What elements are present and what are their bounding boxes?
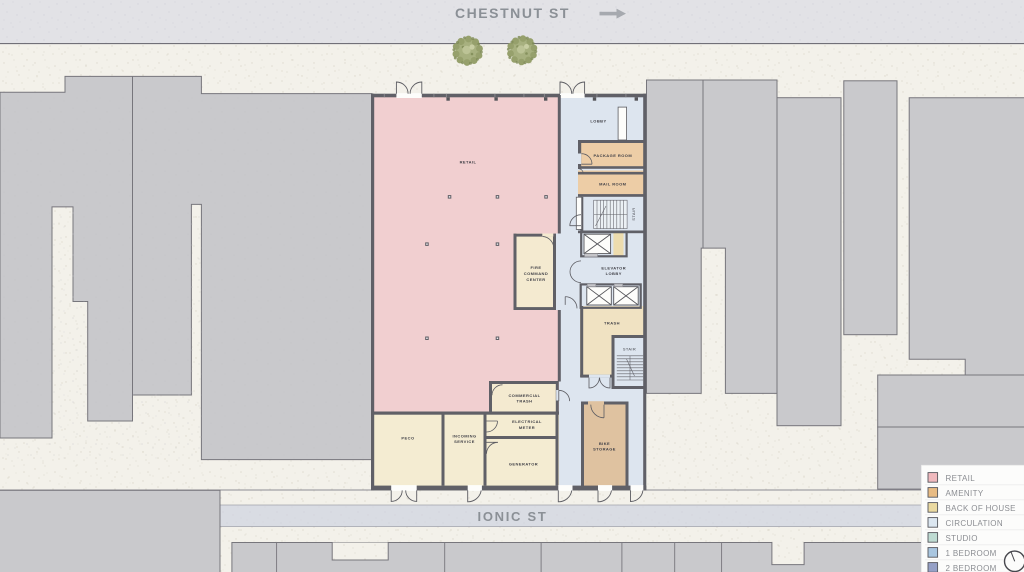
svg-text:COMMAND: COMMAND: [524, 271, 548, 276]
svg-text:CIRCULATION: CIRCULATION: [946, 519, 1003, 528]
svg-text:CENTER: CENTER: [526, 277, 545, 282]
svg-text:AMENITY: AMENITY: [946, 489, 984, 498]
svg-text:ELECTRICAL: ELECTRICAL: [512, 419, 542, 424]
svg-text:SERVICE: SERVICE: [454, 439, 475, 444]
svg-text:RETAIL: RETAIL: [946, 474, 976, 483]
svg-text:MAIL ROOM: MAIL ROOM: [599, 182, 627, 187]
svg-text:CHESTNUT ST: CHESTNUT ST: [455, 5, 570, 21]
svg-text:1 BEDROOM: 1 BEDROOM: [946, 549, 997, 558]
svg-text:LOBBY: LOBBY: [606, 271, 622, 276]
svg-text:INCOMING: INCOMING: [452, 433, 476, 438]
svg-text:RETAIL: RETAIL: [460, 159, 477, 164]
svg-text:GENERATOR: GENERATOR: [509, 461, 538, 466]
svg-text:PACKAGE ROOM: PACKAGE ROOM: [593, 153, 632, 158]
svg-text:STAIR: STAIR: [623, 347, 636, 352]
svg-text:STUDIO: STUDIO: [946, 534, 978, 543]
svg-text:COMMERCIAL: COMMERCIAL: [508, 393, 540, 398]
svg-text:BACK OF HOUSE: BACK OF HOUSE: [946, 504, 1016, 513]
svg-text:METER: METER: [519, 425, 535, 430]
svg-text:TRASH: TRASH: [516, 399, 532, 404]
svg-text:PECO: PECO: [401, 435, 414, 440]
svg-text:FIRE: FIRE: [531, 265, 542, 270]
svg-text:2 BEDROOM: 2 BEDROOM: [946, 564, 997, 572]
svg-text:BIKE: BIKE: [599, 441, 610, 446]
svg-text:STORAGE: STORAGE: [593, 447, 616, 452]
svg-text:STAIR: STAIR: [631, 207, 636, 220]
svg-text:LOBBY: LOBBY: [590, 118, 606, 123]
svg-text:IONIC ST: IONIC ST: [478, 509, 548, 524]
svg-text:ELEVATOR: ELEVATOR: [601, 266, 626, 271]
svg-text:TRASH: TRASH: [604, 320, 620, 325]
